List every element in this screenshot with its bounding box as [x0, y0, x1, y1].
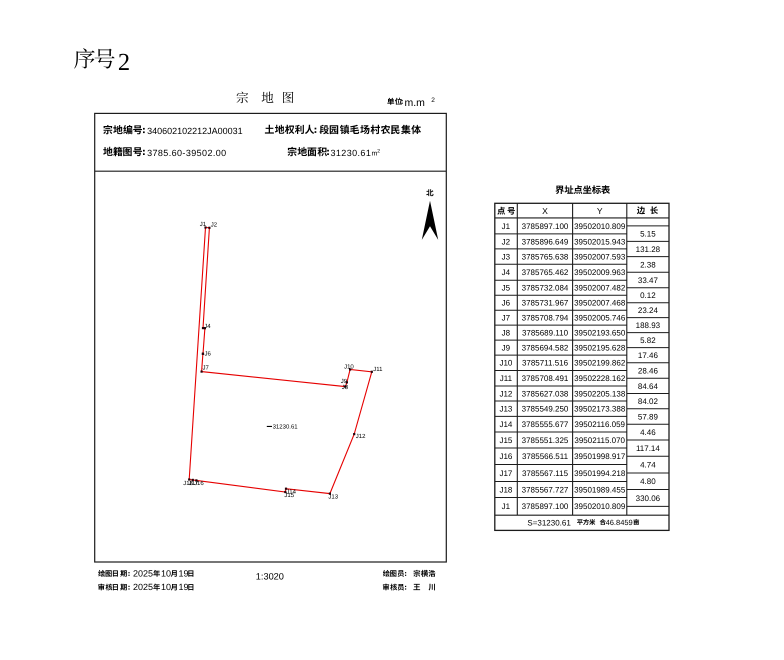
svg-text:39502007.468: 39502007.468	[574, 299, 626, 308]
svg-text:340602102212JA00031: 340602102212JA00031	[147, 126, 243, 136]
svg-text:23.24: 23.24	[638, 306, 659, 315]
svg-text:J3: J3	[502, 252, 511, 261]
svg-text:19: 19	[179, 568, 189, 578]
svg-text:3785566.511: 3785566.511	[522, 452, 569, 461]
svg-text:J16: J16	[194, 480, 204, 487]
svg-text:J10: J10	[344, 363, 354, 370]
svg-text:46.8459: 46.8459	[606, 518, 633, 527]
svg-text:188.93: 188.93	[636, 321, 661, 330]
svg-text:3785567.115: 3785567.115	[522, 469, 569, 478]
svg-text:39502195.628: 39502195.628	[574, 344, 626, 353]
svg-text:4.80: 4.80	[640, 477, 656, 486]
svg-text:J12: J12	[499, 389, 512, 398]
svg-text:39502115.070: 39502115.070	[574, 436, 625, 445]
svg-text:117.14: 117.14	[636, 444, 660, 453]
svg-text:J13: J13	[328, 494, 338, 501]
svg-text:39502010.809: 39502010.809	[574, 502, 626, 511]
svg-text:J8: J8	[342, 384, 349, 391]
svg-text:3785689.110: 3785689.110	[522, 329, 569, 338]
svg-text:1:3020: 1:3020	[256, 571, 284, 581]
svg-text:10: 10	[161, 568, 171, 578]
svg-text:2: 2	[431, 97, 435, 104]
svg-text:3785711.516: 3785711.516	[522, 359, 569, 368]
svg-text:84.64: 84.64	[638, 382, 659, 391]
svg-text:J12: J12	[356, 433, 366, 440]
svg-text:J1: J1	[502, 502, 511, 511]
svg-text:3785731.967: 3785731.967	[522, 299, 569, 308]
svg-text:39502193.650: 39502193.650	[574, 329, 626, 338]
svg-text:3785897.100: 3785897.100	[522, 222, 569, 231]
svg-text:2025: 2025	[133, 568, 153, 578]
svg-text:J8: J8	[502, 329, 511, 338]
svg-text:J5: J5	[502, 284, 511, 293]
svg-text:2025: 2025	[133, 582, 153, 592]
svg-text:39502199.862: 39502199.862	[574, 359, 626, 368]
svg-text:39502007.593: 39502007.593	[574, 252, 626, 261]
svg-text:J2: J2	[502, 237, 511, 246]
svg-text:3785555.677: 3785555.677	[522, 420, 569, 429]
svg-text:J17: J17	[499, 469, 512, 478]
svg-text:39502228.162: 39502228.162	[574, 374, 626, 383]
svg-text:0.12: 0.12	[640, 291, 656, 300]
svg-text:39502007.482: 39502007.482	[574, 284, 626, 293]
svg-text:J15: J15	[499, 436, 512, 445]
svg-text:3785627.038: 3785627.038	[522, 389, 569, 398]
svg-text:J16: J16	[499, 452, 512, 461]
svg-text:J7: J7	[502, 314, 511, 323]
svg-text:J6: J6	[205, 350, 212, 357]
svg-text:J11: J11	[500, 374, 513, 383]
svg-text:39501989.455: 39501989.455	[574, 485, 626, 494]
svg-text:J1: J1	[502, 222, 511, 231]
svg-text:84.02: 84.02	[638, 397, 659, 406]
svg-text:10: 10	[161, 582, 171, 592]
svg-text:3785694.582: 3785694.582	[522, 344, 569, 353]
svg-text:2: 2	[118, 49, 130, 76]
svg-text:330.06: 330.06	[636, 494, 661, 503]
svg-text:39502010.809: 39502010.809	[574, 222, 626, 231]
svg-text:39502116.059: 39502116.059	[574, 420, 625, 429]
svg-text:4.46: 4.46	[640, 428, 656, 437]
svg-text:J10: J10	[499, 359, 512, 368]
svg-text:39502205.138: 39502205.138	[574, 389, 626, 398]
svg-text:J2: J2	[211, 221, 218, 228]
svg-text:J1: J1	[200, 221, 207, 228]
svg-text:39502009.963: 39502009.963	[574, 268, 626, 277]
svg-text:J15: J15	[284, 492, 294, 499]
svg-text:J14: J14	[499, 420, 512, 429]
svg-text:3785549.250: 3785549.250	[522, 405, 569, 414]
svg-text:3785732.084: 3785732.084	[522, 284, 569, 293]
svg-text:17.46: 17.46	[638, 351, 659, 360]
svg-text:X: X	[542, 206, 548, 216]
svg-text:3785897.100: 3785897.100	[522, 502, 569, 511]
svg-text:J4: J4	[502, 268, 511, 277]
svg-text:19: 19	[179, 582, 189, 592]
svg-text:39502005.746: 39502005.746	[574, 314, 626, 323]
svg-text:39502173.388: 39502173.388	[574, 405, 626, 414]
svg-text:3785708.794: 3785708.794	[522, 314, 569, 323]
svg-text:J9: J9	[502, 344, 511, 353]
svg-text:J18: J18	[499, 485, 512, 494]
svg-text:Y: Y	[597, 206, 603, 216]
svg-text:3785765.462: 3785765.462	[522, 268, 569, 277]
svg-text:3785551.325: 3785551.325	[522, 436, 569, 445]
svg-text:3785765.638: 3785765.638	[522, 252, 569, 261]
svg-text:31230.61: 31230.61	[273, 424, 299, 431]
svg-text:m.m: m.m	[405, 97, 426, 109]
svg-text:3785896.649: 3785896.649	[522, 237, 569, 246]
svg-text:5.15: 5.15	[640, 230, 656, 239]
svg-text:39502015.943: 39502015.943	[574, 237, 626, 246]
svg-text:J13: J13	[499, 405, 512, 414]
svg-text:J6: J6	[502, 299, 511, 308]
svg-text:J4: J4	[204, 323, 211, 330]
svg-text:39501994.218: 39501994.218	[574, 469, 626, 478]
svg-text:131.28: 131.28	[636, 245, 661, 254]
svg-text:57.89: 57.89	[638, 412, 659, 421]
svg-text:3785.60-39502.00: 3785.60-39502.00	[147, 148, 226, 158]
svg-text:S=31230.61: S=31230.61	[527, 518, 571, 527]
svg-text:3785567.727: 3785567.727	[522, 485, 569, 494]
svg-text:J11: J11	[373, 366, 383, 373]
svg-text:J7: J7	[203, 364, 210, 371]
svg-text:31230.61: 31230.61	[331, 148, 372, 158]
svg-text:28.46: 28.46	[638, 366, 659, 375]
svg-text:33.47: 33.47	[638, 276, 659, 285]
svg-text:2: 2	[377, 148, 380, 154]
svg-text:39501998.917: 39501998.917	[574, 452, 626, 461]
svg-text:2.38: 2.38	[640, 260, 656, 269]
svg-text:3785708.491: 3785708.491	[522, 374, 569, 383]
svg-text:4.74: 4.74	[640, 461, 656, 470]
svg-text:5.82: 5.82	[640, 336, 656, 345]
